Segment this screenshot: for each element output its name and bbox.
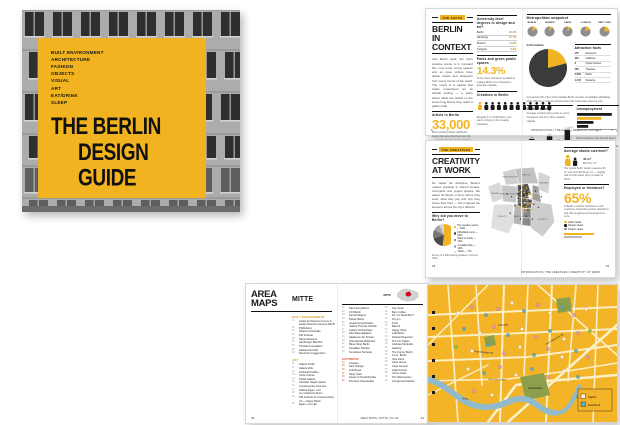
attraction-label-cell: Parks <box>586 73 592 76</box>
maps-left-page: AREA MAPS MITTE BUILT ENVIRONMENT Aedes … <box>246 284 337 423</box>
legend-row: Project space <box>564 228 609 231</box>
studio-person-icons <box>564 154 580 167</box>
svg-text:20: 20 <box>615 131 617 132</box>
cover-category: EAT/DRINK <box>51 92 198 99</box>
svg-text:900: 900 <box>547 134 551 136</box>
venue-list-col2: City KioskBarn CoffeeDo You Read Me?!Pro… <box>385 307 423 383</box>
berlin-pie-chart <box>527 47 569 89</box>
mitte-street-map-page: TorstraßeOranienburger Str.Unter den Lin… <box>427 284 618 423</box>
scale-bars <box>564 233 609 238</box>
degrees-table: Berlin 22.4% Hamburg 14.1% Munich 12.8% … <box>477 30 517 52</box>
snapshot-header: Metropolitan snapshot <box>527 14 612 20</box>
cover-category: ARCHITECTURE <box>51 56 198 63</box>
studio-stat-rent: €6.50 / m² <box>583 161 597 165</box>
table-row: Cologne 9.6% <box>477 47 517 53</box>
creatives-caption: Roughly 1 in 10 Berliners now earns a li… <box>477 116 517 127</box>
mitte-street-map: TorstraßeOranienburger Str.Unter den Lin… <box>428 285 617 422</box>
cover-title-line2: DESIGN GUIDE <box>78 140 198 191</box>
facts-left-page: THE FACTS BERLIN IN CONTEXT Like Berlin … <box>426 9 522 135</box>
degrees-value: 9.6% <box>510 48 516 51</box>
section-tab: THE FACTS <box>440 15 465 20</box>
berlin-district-map: SPANDAUREINICKENDORFPANKOWMARZAHNLICHTEN… <box>485 147 559 269</box>
legend-row: Artist studio <box>564 221 609 224</box>
parks-caption: of the city's total area is parkland, ma… <box>477 77 517 88</box>
freelance-header: Employed or freelance? <box>564 184 609 190</box>
cover-title: THE BERLIN DESIGN GUIDE <box>51 115 198 191</box>
move-pie-header: Why did you move to Berlin? <box>432 212 480 222</box>
cover-category: FASHION <box>51 63 198 70</box>
city-pie: LONDON <box>580 22 591 42</box>
snapshot-caption: Compared with other world capitals Berli… <box>527 96 612 103</box>
venue-list-col1: Sammlung BorosC/O BerlinSprüth MagersKic… <box>342 307 380 354</box>
district-map-wrap: SPANDAUREINICKENDORFPANKOWMARZAHNLICHTEN… <box>485 147 559 271</box>
cover-category: ART <box>51 85 198 92</box>
svg-text:Unter den Linden: Unter den Linden <box>488 378 507 381</box>
freelance-stat: 65% <box>564 191 609 205</box>
cover-category: VISUAL <box>51 77 198 84</box>
map-legend: Artist studioDesign studioProject space <box>564 221 609 231</box>
move-pie-caption: Survey of 1,200 working creatives, summe… <box>432 254 480 261</box>
attraction-label-cell: Galleries <box>586 57 596 60</box>
legend-row: The creative scene — 52% <box>454 224 480 230</box>
page-number-left: 18 <box>432 264 435 268</box>
legend-row: Work or study — 13% <box>454 237 480 243</box>
portfolio-canvas: BUILT ENVIRONMENTARCHITECTUREFASHIONOBJE… <box>0 0 620 425</box>
svg-text:STEGLITZ: STEGLITZ <box>498 216 507 218</box>
running-footer: INTRODUCTION | THE CREATIVES | CREATIVIT… <box>521 271 602 274</box>
attraction-value: 2,500 <box>575 73 584 76</box>
list-item: Princess Cheesecake <box>342 380 380 384</box>
svg-text:Torstraße: Torstraße <box>498 323 509 327</box>
legend-row: Other — 7% <box>454 250 480 253</box>
spread-creativity-at-work: THE CREATIVES CREATIVITY AT WORK No matt… <box>425 140 616 278</box>
spread-berlin-in-context: THE FACTS BERLIN IN CONTEXT Like Berlin … <box>425 8 618 136</box>
degrees-value: 14.1% <box>509 36 517 39</box>
city-pie: BERLIN <box>527 22 538 42</box>
legend-row: Affordable rents — 18% <box>454 231 480 237</box>
built-list: Aedes Architecture Forum & Aedes Network… <box>292 320 337 356</box>
cover-title-line1: THE BERLIN <box>51 115 198 140</box>
studio-header: Average studio size/rent? <box>564 147 609 153</box>
page-number-right: 7 <box>611 128 613 132</box>
list-item: Eigen + Art Lab <box>292 403 337 407</box>
degrees-value: 12.8% <box>509 42 517 45</box>
legend-row: Design studio <box>564 224 609 227</box>
svg-text:Sights: Sights <box>588 395 597 399</box>
studio-caption: The typical Berlin studio measures 45 m²… <box>564 167 609 181</box>
attraction-label-cell: Opera houses <box>586 62 602 65</box>
attraction-label-cell: Museums <box>586 52 597 55</box>
cover-category: SLEEP <box>51 99 198 106</box>
maps-right-page: MITTE Sammlung BorosC/O BerlinSprüth Mag… <box>337 284 428 423</box>
page-number-left: 6 <box>431 128 433 132</box>
page-number-left: 30 <box>251 416 254 420</box>
attraction-label-cell: Students <box>586 79 596 82</box>
page-number-right: 31 <box>421 416 424 420</box>
svg-text:TEMPELHOF: TEMPELHOF <box>513 216 524 218</box>
title-line2: AT WORK <box>432 166 480 175</box>
degrees-city: Berlin <box>477 31 484 34</box>
title-line2: IN CONTEXT <box>432 34 473 52</box>
city-pie-charts: BERLINMADRIDPARISLONDONNEW YORK <box>527 22 612 42</box>
attraction-value: 440 <box>575 57 584 60</box>
work-stats-column: Average studio size/rent? 45 m² €6.50 / … <box>564 147 609 271</box>
running-footer: AREA MAPS | MITTE | 01–63 <box>347 417 412 420</box>
attraction-value: 3 <box>575 62 584 65</box>
eat-drink-list: CookiesKatz OrangeGrill RoyalPauly SaalH… <box>342 362 380 384</box>
berlin-minimap <box>393 287 423 303</box>
city-pie: NEW YORK <box>598 22 611 42</box>
freelance-caption: of Berlin's creative workforce is self-e… <box>564 205 609 219</box>
list-item: Kunsthaus Tacheles <box>342 351 380 355</box>
creatives-header: Creatives in Berlin <box>477 91 517 97</box>
attraction-label-cell: Theatres <box>586 68 596 71</box>
list-item: Aedes Architecture Forum & Aedes Network… <box>292 320 337 327</box>
category-eat-drink: EAT/DRINK <box>342 357 380 361</box>
unemployment-header: Unemployment <box>577 105 619 111</box>
category-built: BUILT ENVIRONMENT <box>292 315 337 319</box>
degrees-city: Hamburg <box>477 36 488 39</box>
city-pie: MADRID <box>544 22 555 42</box>
degrees-value: 22.4% <box>509 31 517 34</box>
cost-caption: Average monthly living costs in euros, c… <box>527 112 573 123</box>
degrees-city: Cologne <box>477 48 487 51</box>
city-pie: PARIS <box>562 22 573 42</box>
attraction-table: 175 Museums 440 Galleries 3 Opera houses… <box>575 51 612 83</box>
artists-stat: 33,000 <box>432 118 473 131</box>
parks-stat: 14.3% <box>477 66 517 77</box>
work-text-column: THE CREATIVES CREATIVITY AT WORK No matt… <box>432 147 480 271</box>
running-footer: INTRODUCTION | THE FACTS | BERLIN IN CON… <box>530 129 604 132</box>
cost-header: Cost of Living <box>527 105 573 111</box>
degrees-city: Munich <box>477 42 486 45</box>
attraction-value: 150 <box>575 68 584 71</box>
move-pie-chart <box>432 223 451 247</box>
intro-text: No matter the discipline, Berlin's maker… <box>432 181 480 210</box>
attraction-row: 1.2 M Students <box>575 78 612 83</box>
legend-row: A relationship — 10% <box>454 244 480 250</box>
svg-text:REINICKENDORF: REINICKENDORF <box>503 177 518 179</box>
svg-text:LICHTENBERG: LICHTENBERG <box>530 193 544 195</box>
svg-text:Eat/Drink: Eat/Drink <box>588 403 601 407</box>
minimap-label: MITTE <box>384 294 392 297</box>
cover-category-list: BUILT ENVIRONMENTARCHITECTUREFASHIONOBJE… <box>51 49 198 106</box>
cover-category: OBJECTS <box>51 70 198 77</box>
attraction-value: 175 <box>575 52 584 55</box>
category-art: ART <box>292 358 337 362</box>
facts-right-page: Metropolitan snapshot BERLINMADRIDPARISL… <box>522 9 618 135</box>
page-title: CREATIVITY AT WORK <box>432 154 480 177</box>
page-title: BERLIN IN CONTEXT <box>432 22 473 54</box>
attraction-value: 1.2 M <box>575 79 584 82</box>
art-list: Galerie KOWGalerie ZinkSchinkel Pavillon… <box>292 363 337 407</box>
list-item: Deutsche Guggenheim <box>292 352 337 356</box>
spread-area-maps: AREA MAPS MITTE BUILT ENVIRONMENT Aedes … <box>245 283 429 424</box>
list-item: Honigmond Garden <box>385 380 423 384</box>
cover-yellow-panel: BUILT ENVIRONMENTARCHITECTUREFASHIONOBJE… <box>38 38 206 198</box>
map-legend: SightsEat/Drink <box>578 389 612 411</box>
svg-text:Monbijoupark: Monbijoupark <box>528 387 543 390</box>
book-cover: BUILT ENVIRONMENTARCHITECTUREFASHIONOBJE… <box>22 10 240 212</box>
section-tab: THE CREATIVES <box>439 147 473 152</box>
intro-text: Like Berlin itself, the city's creative … <box>432 57 473 108</box>
move-pie-legend: The creative scene — 52%Affordable rents… <box>454 223 480 254</box>
cover-category: BUILT ENVIRONMENT <box>51 49 198 56</box>
degrees-header: University-level degrees in design and a… <box>477 15 517 29</box>
attraction-header: Attraction facts <box>575 44 612 50</box>
page-number-right: 19 <box>606 264 609 268</box>
district-heading: MITTE <box>292 296 313 303</box>
parks-header: Parks and green public spaces <box>477 55 517 65</box>
svg-text:760: 760 <box>530 137 534 139</box>
